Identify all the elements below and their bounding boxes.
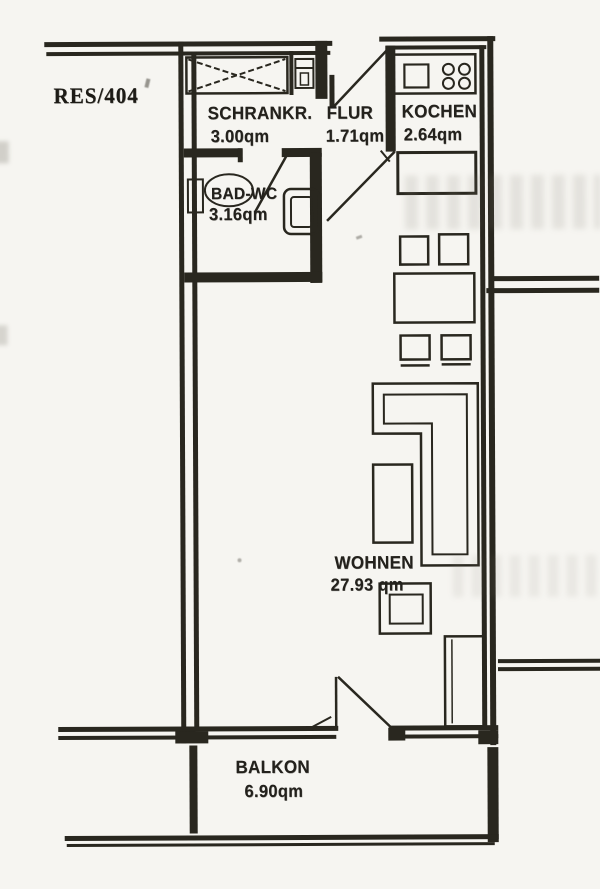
wall-neighbor-mid-lower [486,288,599,293]
wall-bad-door-jamb [238,148,243,162]
room-label-balkon: BALKON [235,758,310,776]
wall-foot-right [478,730,498,744]
wall-bad-bottom [184,272,322,283]
room-area-balkon: 6.90qm [244,783,303,801]
chair-icon [401,335,430,359]
chair-icon [439,234,468,264]
wall-neighbor-balcony-upper [498,659,600,663]
neighbor-walls [486,276,600,671]
floorplan-drawing [0,0,600,889]
balcony-door-swing-icon [338,677,390,727]
wall-top-inner [46,51,330,56]
room-area-schrankraum: 3.00qm [211,128,270,146]
kitchen-fixtures [392,54,476,193]
room-area-kochen: 2.64qm [404,126,463,144]
closet-room-fixtures [186,57,313,94]
entrance-door-swing-icon [333,48,389,107]
wall-right-inner [479,45,487,727]
kitchen-lower-counter [398,152,476,193]
wall-balcony-right [487,747,498,842]
room-area-flur: 1.71qm [326,128,385,146]
wall-left-outer [178,42,186,744]
wall-kitchen-top-outer [379,36,495,42]
room-label-wohnen: WOHNEN [334,554,413,572]
wall-bad-top-left [184,148,242,157]
room-label-schrankraum: SCHRANKR. [208,104,313,122]
stool-inner [390,594,423,623]
dining-table-icon [394,273,474,322]
plan-id-label: RES/404 [53,85,138,108]
wall-foot-door-jamb [388,728,405,741]
kitchen-door-swing-icon [327,152,395,221]
kitchen-sink-icon [404,64,428,87]
wardrobe-icon [445,636,485,726]
room-area-wohnen: 27.93 qm [331,577,404,595]
wall-closet-nook-divider [289,51,293,95]
doors [254,48,397,728]
wall-balcony-left [189,745,197,833]
room-label-flur: FLUR [327,104,374,122]
wall-bottom-left-outer [58,726,338,732]
toilet-inner [291,197,312,227]
room-label-kochen: KOCHEN [402,102,478,120]
room-area-bad-wc: 3.16qm [209,206,268,224]
wall-right-outer [487,36,496,745]
chair-icon [400,236,428,264]
wall-foot-left [175,731,208,743]
balcony-door-threshold-mark [312,717,331,727]
wall-kitchen-top-inner [386,45,486,49]
wall-kitchen-left [385,46,395,152]
floorplan-tilt-wrapper: RES/404 SCHRANKR. 3.00qm FLUR 1.71qm KOC… [0,0,600,889]
water-heater-inner [300,73,308,85]
l-sofa-inner [384,394,468,554]
four-burner-stove-icon [443,64,470,89]
wall-neighbor-mid-upper [491,276,599,281]
chair-icon [442,335,471,359]
wall-top-outer [44,41,332,47]
wall-flur-left [315,41,327,99]
room-label-bad-wc: BAD-WC [211,186,277,203]
floorplan-scan: RES/404 SCHRANKR. 3.00qm FLUR 1.71qm KOC… [0,0,600,889]
coffee-table-icon [373,465,412,543]
wall-neighbor-balcony-lower [498,667,600,671]
wall-balcony-front-inner [67,842,495,847]
living-room-furniture [372,234,485,726]
wall-balcony-front-outer [65,834,499,841]
interior-walls [183,41,396,284]
l-sofa-icon [373,383,479,565]
